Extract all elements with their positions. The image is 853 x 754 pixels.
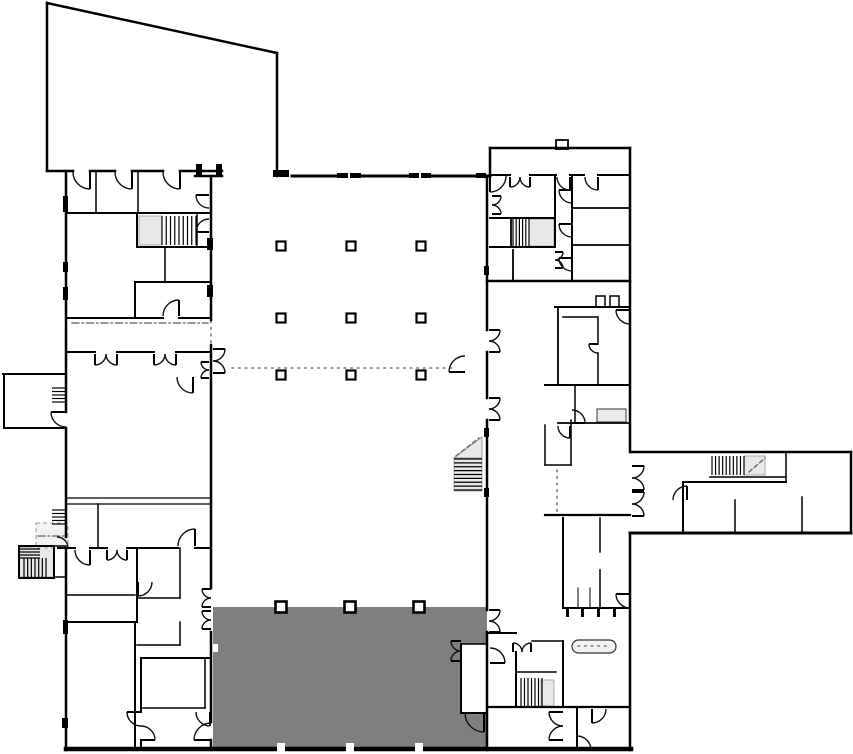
stair-landing bbox=[541, 680, 554, 706]
door-leaf-bar bbox=[421, 173, 431, 178]
column bbox=[277, 314, 286, 323]
wall-notch bbox=[213, 644, 218, 652]
wall-notch bbox=[277, 743, 285, 752]
door-leaf-bar bbox=[196, 164, 202, 176]
column bbox=[347, 371, 356, 380]
door-leaf-bar bbox=[484, 266, 489, 275]
door-leaf-bar bbox=[350, 173, 361, 178]
wall-tab bbox=[610, 296, 619, 307]
column bbox=[277, 371, 286, 380]
fill-layer bbox=[213, 607, 487, 749]
column bbox=[417, 371, 426, 380]
casework-fixture bbox=[597, 409, 626, 422]
door-leaf-bar bbox=[207, 238, 213, 250]
door-leaf-bar bbox=[484, 488, 489, 497]
floor-plan-canvas bbox=[0, 0, 853, 754]
door-leaf-bar bbox=[613, 608, 616, 617]
column bbox=[347, 314, 356, 323]
column bbox=[417, 314, 426, 323]
stair-landing bbox=[529, 219, 554, 246]
shaded-zone bbox=[213, 607, 487, 749]
door-leaf-bar bbox=[63, 620, 68, 634]
stair-southwest-winder bbox=[24, 558, 46, 578]
column bbox=[277, 242, 286, 251]
door-leaf-bar bbox=[63, 287, 68, 300]
door-leaf-bar bbox=[484, 428, 489, 437]
door-leaf-bar bbox=[476, 173, 486, 178]
door-leaf-bar bbox=[63, 196, 68, 212]
door-leaf-bar bbox=[409, 173, 419, 178]
door-leaf-bar bbox=[273, 170, 289, 177]
column bbox=[276, 602, 287, 613]
door-leaf-bar bbox=[207, 285, 213, 297]
stair-landing bbox=[139, 216, 162, 245]
column bbox=[414, 602, 425, 613]
column bbox=[347, 242, 356, 251]
zone-cutout-room bbox=[461, 644, 487, 713]
floor-plan bbox=[0, 0, 853, 754]
door-leaf-bar bbox=[63, 262, 68, 272]
door-leaf-bar bbox=[581, 608, 584, 617]
column bbox=[417, 242, 426, 251]
wall-notch bbox=[346, 743, 354, 752]
door-leaf-bar bbox=[216, 164, 222, 176]
door-leaf-bar bbox=[597, 608, 600, 617]
wall-tab bbox=[596, 296, 605, 307]
stair-southeast bbox=[521, 678, 542, 706]
wall-notch bbox=[415, 743, 423, 752]
door-leaf-bar bbox=[337, 173, 348, 178]
stair-landing bbox=[744, 456, 765, 475]
door-leaf-bar bbox=[62, 718, 68, 728]
column bbox=[345, 602, 356, 613]
door-leaf-bar bbox=[566, 608, 569, 617]
